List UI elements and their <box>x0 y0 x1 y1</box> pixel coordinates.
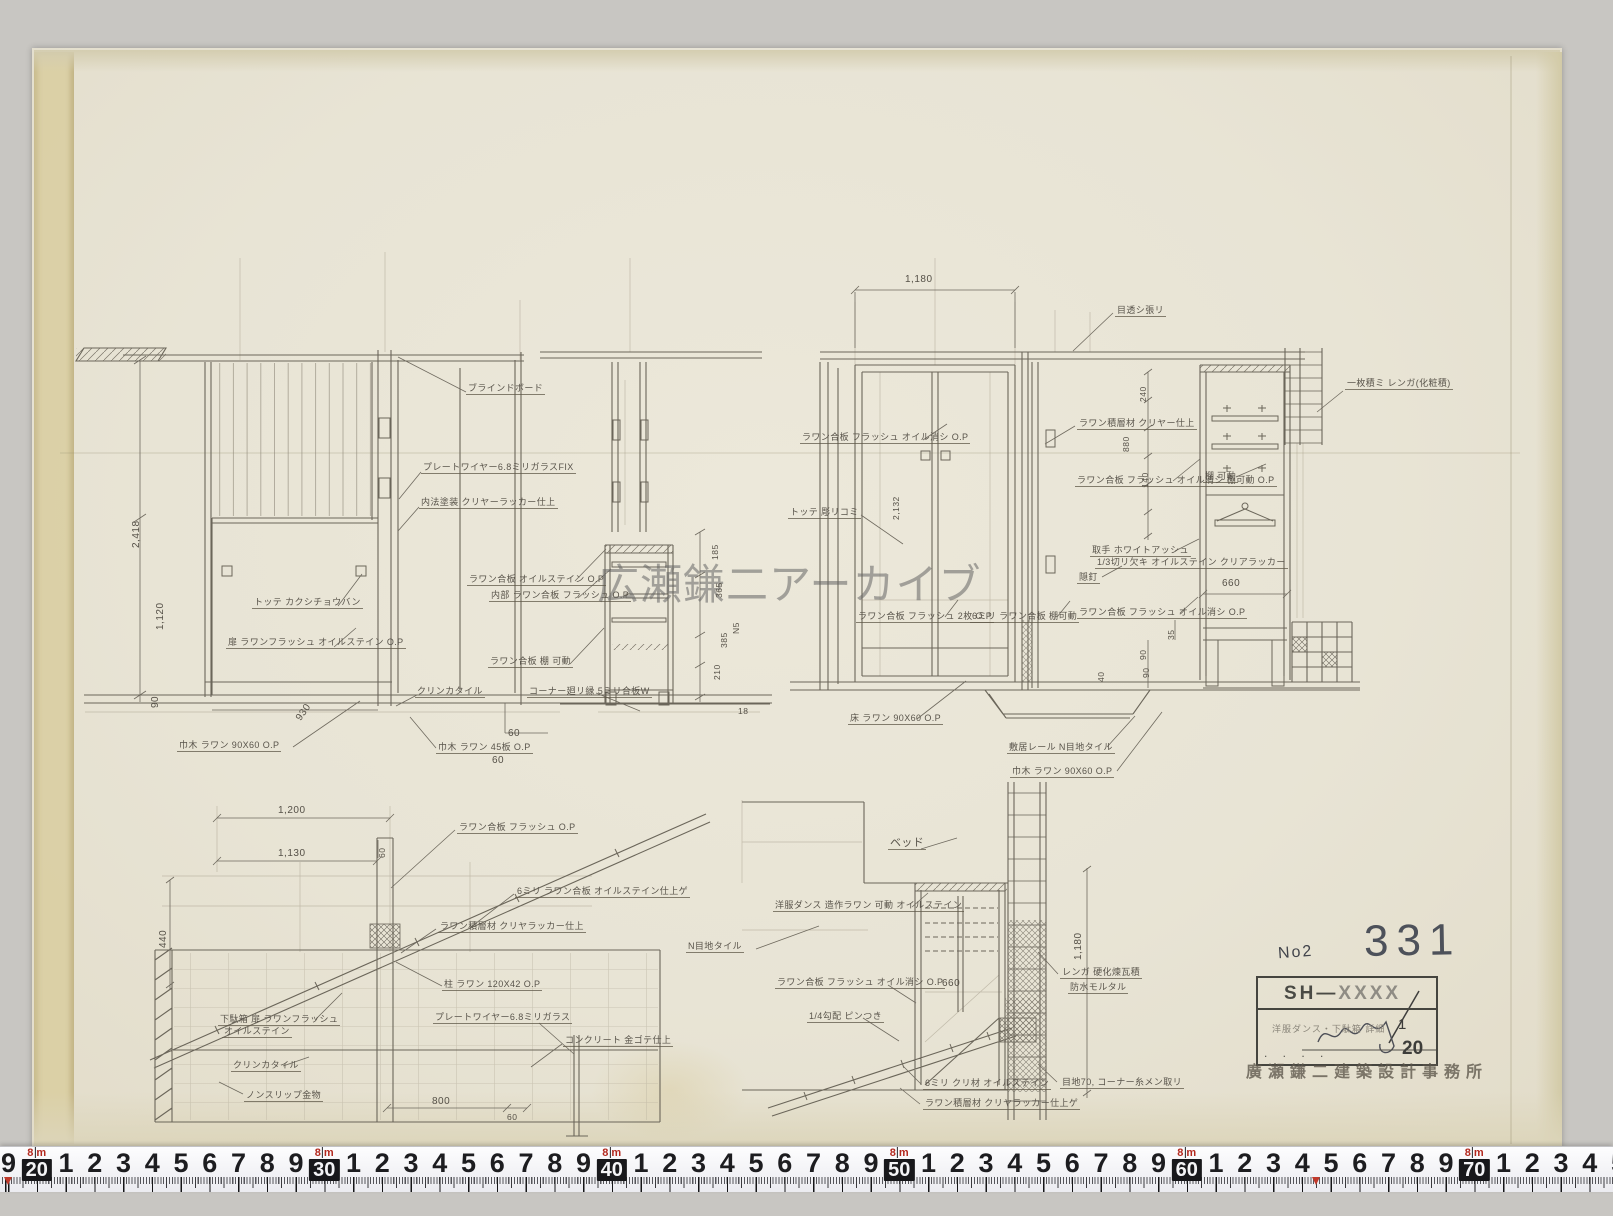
ruler-cm-digit: 6 <box>490 1148 504 1179</box>
ruler-cm-digit: 3 <box>691 1148 705 1179</box>
dimension-label: 1,120 <box>155 602 166 630</box>
ruler-cm-digit: 3 <box>1266 1148 1280 1179</box>
annotation: 6ミリ ラワン合板 棚可動 <box>970 611 1079 623</box>
ruler-cm-digit: 1 <box>921 1148 935 1179</box>
ruler-cm-digit: 1 <box>346 1148 360 1179</box>
annotation: トッテ カクシチョウバン <box>252 597 363 609</box>
annotation: ラワン合板 棚 可動 <box>488 656 573 668</box>
sheet-no-label: No2 <box>1277 943 1314 963</box>
dimension-label: 90 <box>1138 650 1148 660</box>
ruler-red-marker <box>4 1177 12 1185</box>
ruler-cm-digit: 2 <box>1237 1148 1251 1179</box>
ruler-cm-digit: 4 <box>432 1148 446 1179</box>
annotation: プレートワイヤー6.8ミリガラスFIX <box>421 462 576 474</box>
dimension-label: 60 <box>508 728 520 739</box>
scale-denominator: 20 <box>1402 1038 1423 1060</box>
ruler-cm-digit: 9 <box>576 1148 590 1179</box>
annotation: 洋服ダンス 造作ラワン 可動 オイルステイン <box>773 900 964 912</box>
ruler-decimeter-cell: 8m60 <box>1172 1147 1202 1181</box>
ruler-cm-digit: 1 <box>1496 1148 1510 1179</box>
ruler-cm-digit: 7 <box>1093 1148 1107 1179</box>
dimension-label: 210 <box>712 664 722 680</box>
annotation: ラワン合板 フラッシュ オイル消シ 棚可動 O.P <box>1075 475 1277 487</box>
annotation: コンクリート 金ゴテ仕上 <box>563 1035 673 1047</box>
dimension-label: 1,130 <box>278 848 306 859</box>
dimension-label: 60 <box>377 848 387 858</box>
ruler-cm-digit: 9 <box>1 1148 15 1179</box>
dimension-label: 40 <box>1096 672 1106 682</box>
ruler-red-marker <box>1312 1177 1320 1185</box>
ruler-cm-digit: 8 <box>1122 1148 1136 1179</box>
annotation: 6ミリ ラワン合板 オイルステイン仕上ゲ <box>515 886 690 898</box>
ruler-cm-digit: 8 <box>835 1148 849 1179</box>
dimension-label: 60 <box>507 1112 517 1122</box>
annotation: トッテ 彫リコミ <box>788 507 861 519</box>
dimension-label: 1,200 <box>278 805 306 816</box>
annotation: 扉 ラワンフラッシュ オイルステイン O.P <box>226 637 406 649</box>
dimension-label: 385 <box>719 632 729 648</box>
annotation: ラワン積層材 クリヤー仕上 <box>1077 418 1197 430</box>
annotation: 巾木 ラワン 45板 O.P <box>436 742 533 754</box>
ruler-decimeter-cell: 8m50 <box>884 1147 914 1181</box>
annotation: ラワン合板 オイルステイン O.P <box>467 574 606 586</box>
dimension-label: 880 <box>1121 436 1131 452</box>
ruler-cm-digit: 6 <box>777 1148 791 1179</box>
annotation: プレートワイヤー6.8ミリガラス <box>433 1012 572 1024</box>
annotation: 1/3切リ欠キ オイルステイン クリアラッカー <box>1095 557 1288 569</box>
ruler-cm-digit: 6 <box>202 1148 216 1179</box>
annotation: 床 ラワン 90X60 O.P <box>848 713 943 725</box>
ruler-cm-digit: 9 <box>1438 1148 1452 1179</box>
ruler-cm-digit: 1 <box>58 1148 72 1179</box>
dimension-label: 800 <box>432 1096 450 1107</box>
annotation: ノンスリップ金物 <box>244 1090 323 1102</box>
ruler-cm-digit: 6 <box>1065 1148 1079 1179</box>
dimension-label: 185 <box>710 544 720 560</box>
ruler-cm-digit: 3 <box>403 1148 417 1179</box>
annotation: 敷居レール N目地タイル <box>1007 742 1115 754</box>
project-code-suffix: XXXX <box>1338 983 1401 1004</box>
ruler-cm-digit: 9 <box>288 1148 302 1179</box>
ruler-cm-digit: 2 <box>1525 1148 1539 1179</box>
scanned-drawing-page: 広瀬鎌二アーカイブ ブラインドボード プレートワイヤー6.8ミリガラスFIX 内… <box>0 0 1613 1216</box>
ruler-cm-digit: 5 <box>1036 1148 1050 1179</box>
ruler-cm-digit: 4 <box>720 1148 734 1179</box>
ruler-cm-digit: 3 <box>116 1148 130 1179</box>
ruler-cm-digit: 2 <box>375 1148 389 1179</box>
dimension-label: 660 <box>1222 578 1240 589</box>
annotation: クリンカタイル <box>231 1060 301 1072</box>
dimension-label: 35 <box>1166 630 1176 640</box>
annotation: 一枚積ミ レンガ(化粧積) <box>1345 378 1453 390</box>
ruler-cm-digit: 5 <box>1323 1148 1337 1179</box>
ruler-cm-digit: 1 <box>633 1148 647 1179</box>
annotation: ラワン合板 フラッシュ オイル消シ O.P <box>775 977 945 989</box>
office-stamp: 廣瀬鎌二建築設計事務所 <box>1246 1058 1488 1082</box>
scale-numerator: 1 <box>1398 1016 1406 1033</box>
annotation: 目地70, コーナー糸メン取リ <box>1060 1077 1184 1089</box>
dimension-label: 90 <box>150 696 161 708</box>
ruler-cm-digit: 4 <box>145 1148 159 1179</box>
annotation: 下駄箱 扉 ラワンフラッシュ <box>218 1014 340 1026</box>
annotation: ブラインドボード <box>466 383 545 395</box>
dimension-label: 1,180 <box>1073 932 1084 960</box>
annotation: ラワン積層材 クリヤラッカー仕上ゲ <box>923 1098 1080 1110</box>
ruler-cm-digit: 5 <box>748 1148 762 1179</box>
annotation: 巾木 ラワン 90X60 O.P <box>1010 766 1114 778</box>
archive-watermark: 広瀬鎌二アーカイブ <box>597 551 981 612</box>
ruler-decimeter-cell: 8m20 <box>22 1147 52 1181</box>
ruler-cm-digit: 4 <box>1582 1148 1596 1179</box>
ruler-cm-digit: 7 <box>518 1148 532 1179</box>
annotation: コーナー廻リ縁 5ミリ合板W <box>527 686 652 698</box>
annotation: 目透シ張リ <box>1115 305 1166 317</box>
annotation: 取手 ホワイトアッシュ <box>1090 545 1191 557</box>
dimension-label: 1,180 <box>905 274 933 285</box>
dimension-label: N5 <box>731 622 741 634</box>
ruler-cm-digit: 2 <box>950 1148 964 1179</box>
ruler-cm-digit: 8 <box>1410 1148 1424 1179</box>
dimension-label: 90 <box>1141 668 1151 678</box>
dimension-label: 2,418 <box>131 520 142 548</box>
project-code-prefix: SH— <box>1284 983 1338 1004</box>
ruler-cm-digit: 4 <box>1295 1148 1309 1179</box>
annotation: ラワン合板 フラッシュ オイル消シ O.P <box>1077 607 1247 619</box>
dimension-label: 2,132 <box>891 496 901 520</box>
annotation: レンガ 硬化煉瓦積 <box>1060 967 1142 979</box>
ruler-cm-digit: 1 <box>1208 1148 1222 1179</box>
annotation: 1/4勾配 ピンつき <box>807 1011 884 1023</box>
annotation: クリンカタイル <box>415 686 485 698</box>
ruler-cm-digit: 8 <box>260 1148 274 1179</box>
project-code: SH—XXXX <box>1258 978 1436 1010</box>
annotation: ベッド <box>888 838 926 850</box>
ruler-decimeter-cell: 8m40 <box>597 1147 627 1181</box>
measuring-tape-ruler: 98m201234567898m301234567898m40123456789… <box>0 1146 1613 1192</box>
dimension-label: 440 <box>158 930 169 948</box>
annotation: 隠釘 <box>1077 572 1100 584</box>
annotation: ラワン合板 フラッシュ O.P <box>457 822 578 834</box>
annotation: 棚 可動 <box>1203 471 1238 483</box>
ruler-scale: 98m201234567898m301234567898m40123456789… <box>0 1147 1613 1192</box>
annotation: 6ミリ クリ材 オイルステイン <box>923 1078 1051 1090</box>
drawing-title: 洋服ダンス・下駄箱 詳細 <box>1272 1022 1385 1035</box>
annotation: ラワン積層材 クリヤラッカー仕上 <box>438 921 586 933</box>
ruler-cm-digit: 5 <box>461 1148 475 1179</box>
ruler-decimeter-cell: 8m30 <box>309 1147 339 1181</box>
dimension-label: 140 <box>1140 472 1150 488</box>
dimension-label: 240 <box>1138 386 1148 402</box>
dimension-label: 365 <box>714 582 724 598</box>
dimension-label: 60 <box>492 755 504 766</box>
annotation: 柱 ラワン 120X42 O.P <box>442 979 542 991</box>
ruler-cm-digit: 8 <box>547 1148 561 1179</box>
ruler-cm-digit: 6 <box>1352 1148 1366 1179</box>
ruler-decimeter-cell: 8m70 <box>1459 1147 1489 1181</box>
dimension-label: 660 <box>942 978 960 989</box>
ruler-cm-digit: 7 <box>231 1148 245 1179</box>
annotation: 巾木 ラワン 90X60 O.P <box>177 740 281 752</box>
annotation: 内部 ラワン合板 フラッシュ O.P <box>489 590 631 602</box>
ruler-cm-digit: 2 <box>662 1148 676 1179</box>
dimension-label: 18 <box>738 706 748 716</box>
ruler-cm-digit: 3 <box>978 1148 992 1179</box>
ruler-cm-digit: 5 <box>173 1148 187 1179</box>
annotation: 内法塗装 クリヤーラッカー仕上 <box>419 497 558 509</box>
annotation: N目地タイル <box>686 941 744 953</box>
annotation: オイルステイン <box>222 1026 292 1038</box>
title-block-box: SH—XXXX 洋服ダンス・下駄箱 詳細 1 20 . . . . <box>1256 976 1438 1066</box>
ruler-cm-digit: 7 <box>806 1148 820 1179</box>
ruler-cm-digit: 9 <box>1151 1148 1165 1179</box>
annotation: ラワン合板 フラッシュ オイル消シ O.P <box>800 432 970 444</box>
ruler-cm-digit: 7 <box>1381 1148 1395 1179</box>
ruler-cm-digit: 2 <box>87 1148 101 1179</box>
sheet-number: 331 <box>1364 915 1462 967</box>
ruler-cm-digit: 4 <box>1007 1148 1021 1179</box>
ruler-cm-digit: 3 <box>1553 1148 1567 1179</box>
annotation: 防水モルタル <box>1068 982 1128 994</box>
ruler-cm-digit: 9 <box>863 1148 877 1179</box>
